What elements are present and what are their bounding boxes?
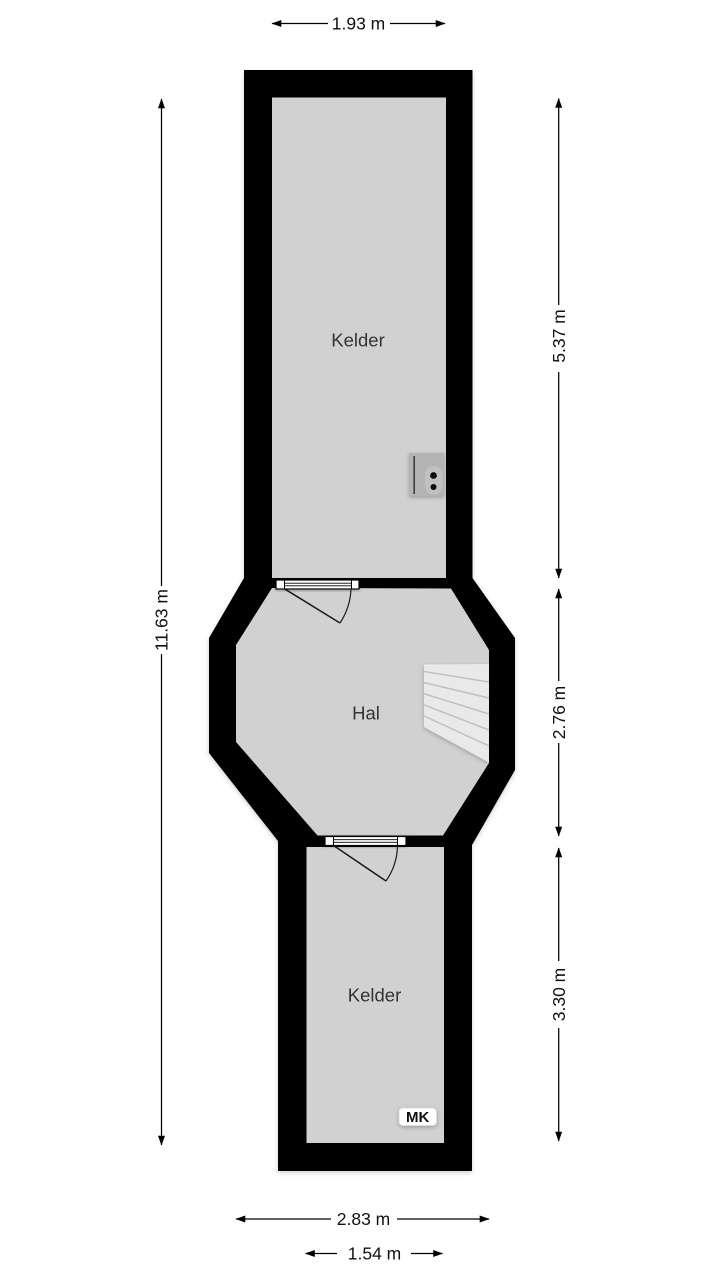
svg-text:3.30 m: 3.30 m — [549, 968, 569, 1022]
svg-text:Kelder: Kelder — [348, 985, 401, 1006]
svg-text:Kelder: Kelder — [331, 330, 384, 351]
svg-text:1.93 m: 1.93 m — [332, 14, 386, 34]
svg-text:2.76 m: 2.76 m — [549, 686, 569, 740]
svg-text:Hal: Hal — [352, 703, 380, 724]
svg-text:11.63 m: 11.63 m — [152, 589, 172, 651]
svg-text:5.37 m: 5.37 m — [549, 309, 569, 363]
svg-text:MK: MK — [406, 1109, 429, 1126]
svg-text:1.54 m: 1.54 m — [348, 1244, 402, 1264]
svg-text:2.83 m: 2.83 m — [337, 1209, 391, 1229]
